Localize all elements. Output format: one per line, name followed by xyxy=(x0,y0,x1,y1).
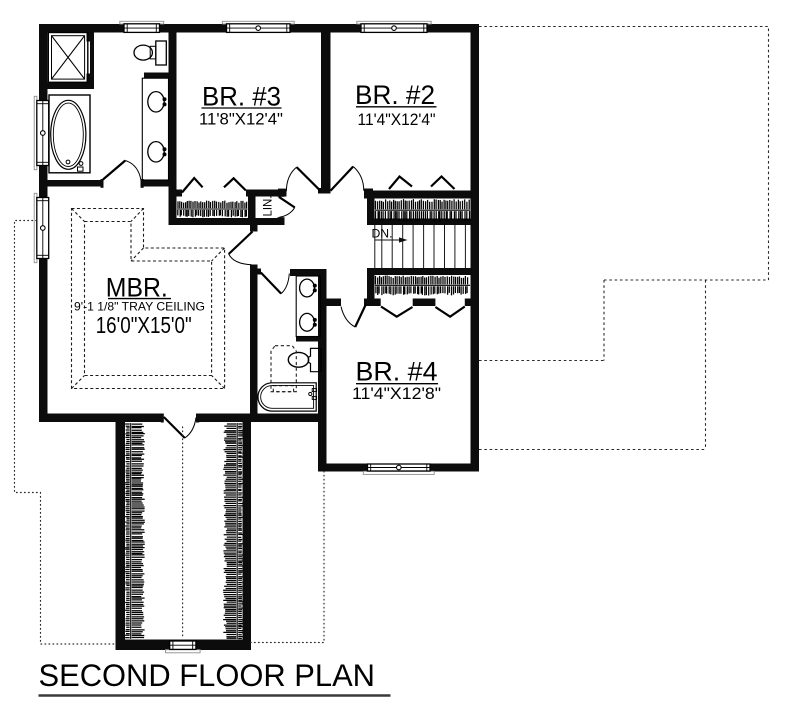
svg-text:DN.: DN. xyxy=(372,227,393,241)
svg-text:SECOND FLOOR PLAN: SECOND FLOOR PLAN xyxy=(39,657,376,693)
svg-text:11'4"X12'4": 11'4"X12'4" xyxy=(358,111,436,129)
svg-text:11'8"X12'4": 11'8"X12'4" xyxy=(199,111,283,129)
svg-text:16'0"X15'0": 16'0"X15'0" xyxy=(96,312,192,338)
svg-text:BR. #4: BR. #4 xyxy=(356,357,438,387)
svg-text:LIN.: LIN. xyxy=(261,196,275,217)
svg-text:BR. #2: BR. #2 xyxy=(355,80,435,110)
svg-text:BR. #3: BR. #3 xyxy=(202,82,281,112)
svg-text:11'4"X12'8": 11'4"X12'8" xyxy=(352,385,441,403)
